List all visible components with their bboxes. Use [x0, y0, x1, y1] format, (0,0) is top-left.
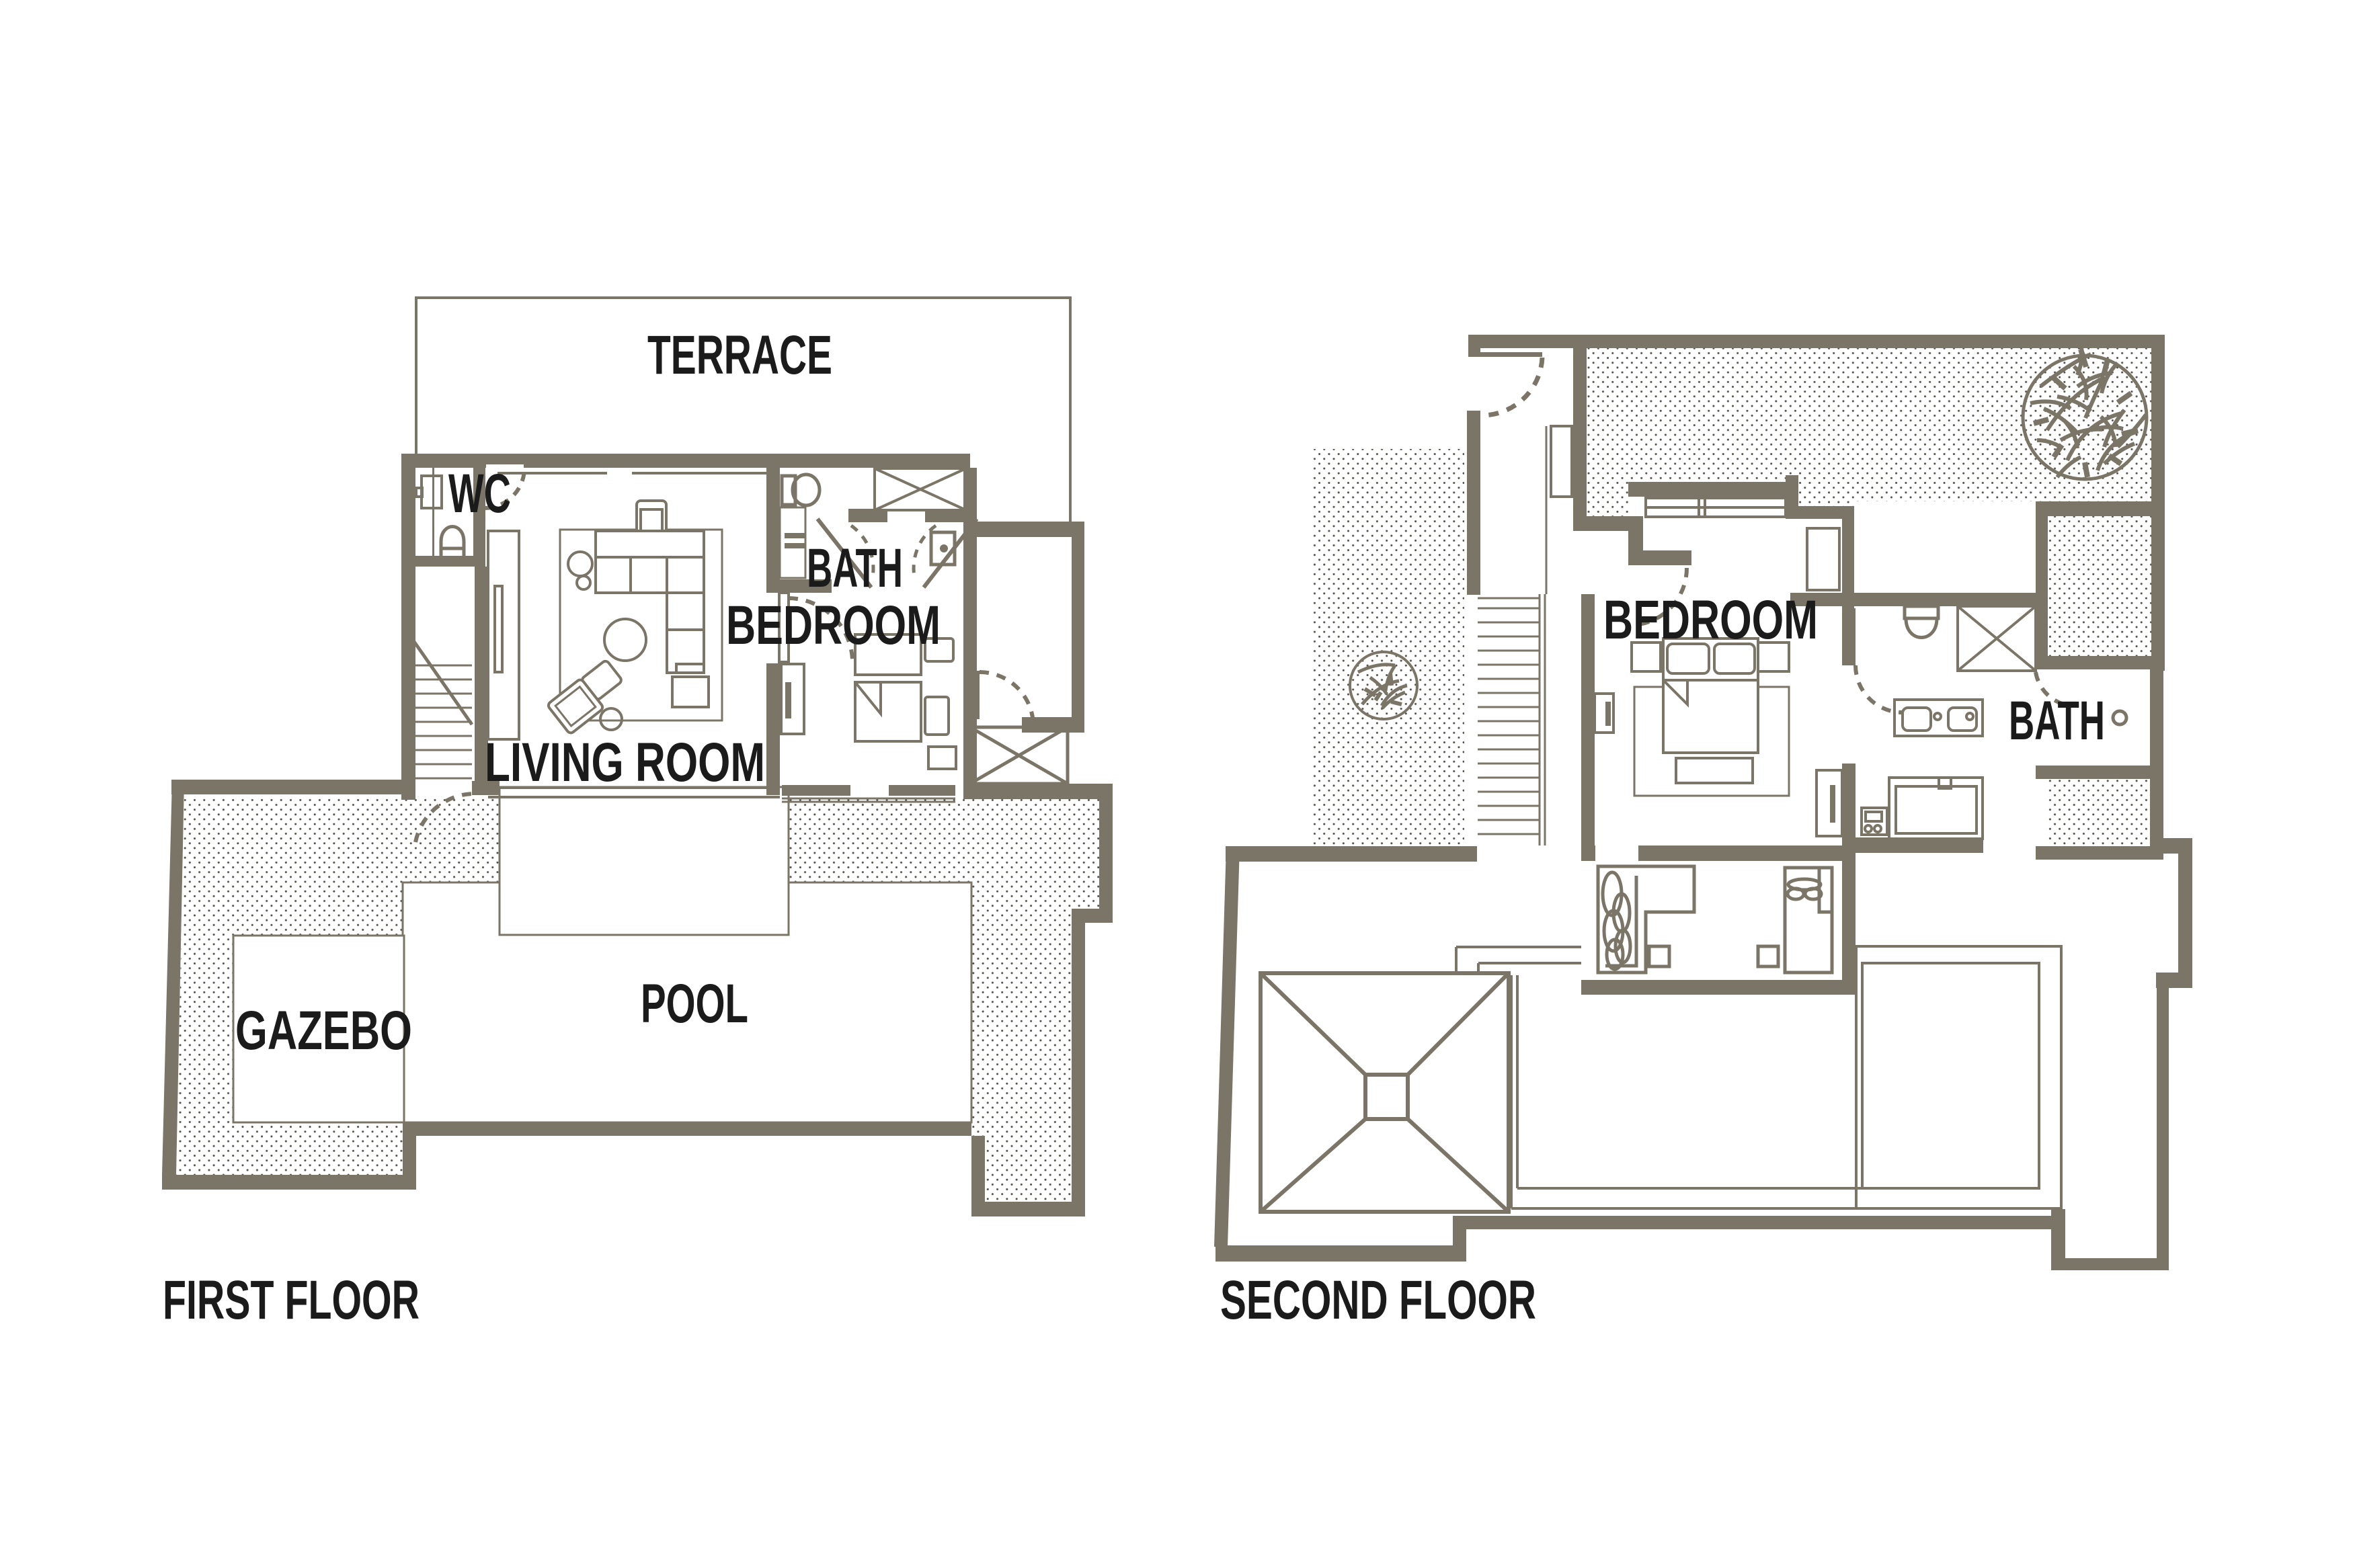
svg-text:WC: WC [448, 463, 511, 524]
svg-text:BATH: BATH [2009, 690, 2105, 751]
svg-text:BATH: BATH [807, 538, 903, 599]
svg-text:SECOND FLOOR: SECOND FLOOR [1220, 1270, 1536, 1331]
svg-text:FIRST FLOOR: FIRST FLOOR [163, 1270, 420, 1331]
svg-text:BEDROOM: BEDROOM [1603, 589, 1818, 651]
svg-text:TERRACE: TERRACE [647, 325, 832, 386]
svg-text:POOL: POOL [641, 973, 748, 1034]
svg-text:GAZEBO: GAZEBO [235, 1000, 412, 1061]
svg-text:LIVING ROOM: LIVING ROOM [485, 732, 765, 793]
svg-text:BEDROOM: BEDROOM [726, 595, 941, 656]
